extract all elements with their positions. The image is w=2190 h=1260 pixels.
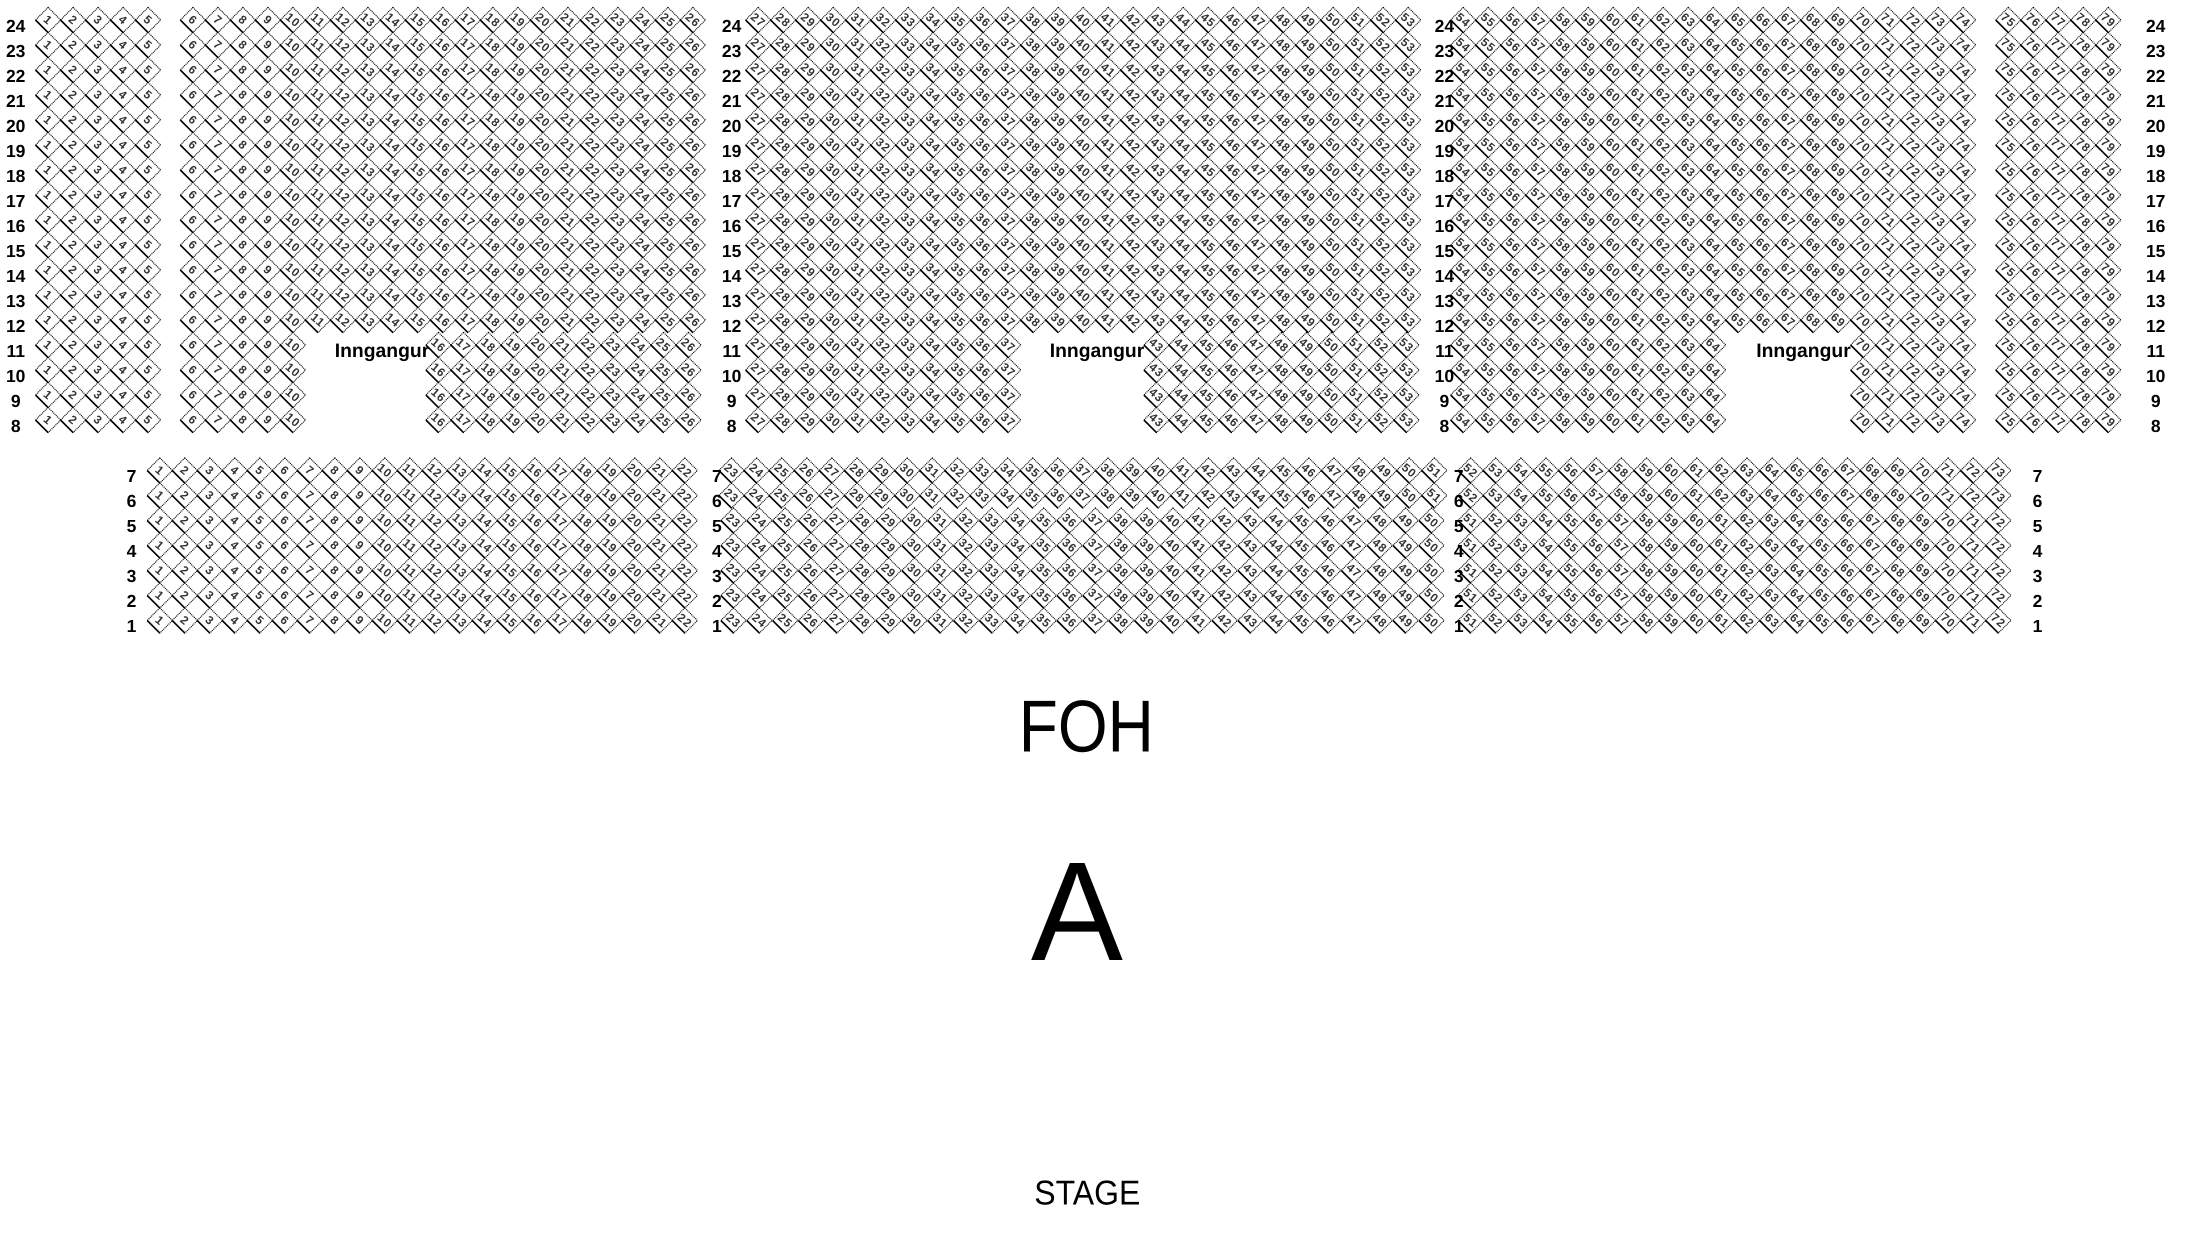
svg-text:52: 52 [1373, 85, 1393, 105]
svg-text:62: 62 [1712, 485, 1732, 505]
svg-text:58: 58 [1611, 460, 1631, 480]
svg-text:34: 34 [923, 310, 943, 330]
svg-text:44: 44 [1173, 35, 1193, 55]
svg-text:15: 15 [408, 110, 428, 130]
svg-text:47: 47 [1248, 160, 1268, 180]
svg-text:20: 20 [533, 310, 553, 330]
svg-text:40: 40 [1163, 585, 1183, 605]
svg-text:39: 39 [1048, 110, 1068, 130]
svg-text:29: 29 [798, 310, 818, 330]
svg-text:50: 50 [1321, 360, 1341, 380]
svg-text:65: 65 [1812, 510, 1832, 530]
svg-text:30: 30 [823, 135, 843, 155]
svg-text:56: 56 [1586, 585, 1606, 605]
svg-text:31: 31 [848, 185, 868, 205]
svg-text:68: 68 [1803, 260, 1823, 280]
svg-text:42: 42 [1123, 160, 1143, 180]
svg-text:55: 55 [1478, 185, 1498, 205]
svg-text:Inngangur: Inngangur [1050, 340, 1145, 362]
svg-text:20: 20 [528, 335, 548, 355]
svg-text:61: 61 [1628, 10, 1648, 30]
svg-text:17: 17 [453, 410, 473, 430]
svg-text:31: 31 [930, 510, 950, 530]
svg-text:74: 74 [1953, 110, 1973, 130]
svg-text:39: 39 [1137, 610, 1157, 630]
svg-text:7: 7 [127, 466, 137, 486]
svg-text:25: 25 [775, 585, 795, 605]
svg-text:33: 33 [898, 385, 918, 405]
svg-text:55: 55 [1561, 610, 1581, 630]
svg-text:62: 62 [1653, 285, 1673, 305]
svg-text:21: 21 [558, 160, 578, 180]
svg-text:37: 37 [998, 385, 1018, 405]
svg-text:50: 50 [1323, 310, 1343, 330]
svg-text:74: 74 [1953, 310, 1973, 330]
svg-text:38: 38 [1023, 35, 1043, 55]
svg-text:66: 66 [1753, 160, 1773, 180]
svg-text:38: 38 [1023, 210, 1043, 230]
svg-text:11: 11 [308, 235, 328, 255]
svg-text:51: 51 [1348, 10, 1368, 30]
svg-text:32: 32 [873, 410, 893, 430]
svg-text:20: 20 [533, 110, 553, 130]
svg-text:71: 71 [1878, 210, 1898, 230]
svg-text:14: 14 [383, 60, 403, 80]
svg-text:30: 30 [823, 210, 843, 230]
svg-text:31: 31 [848, 35, 868, 55]
svg-text:24: 24 [1435, 16, 1455, 36]
svg-text:75: 75 [1998, 10, 2018, 30]
svg-text:23: 23 [608, 110, 628, 130]
svg-text:79: 79 [2098, 410, 2118, 430]
svg-text:33: 33 [898, 135, 918, 155]
svg-text:28: 28 [773, 60, 793, 80]
svg-text:17: 17 [458, 185, 478, 205]
svg-text:76: 76 [2023, 210, 2043, 230]
svg-text:62: 62 [1653, 385, 1673, 405]
svg-text:53: 53 [1398, 135, 1418, 155]
svg-text:36: 36 [973, 335, 993, 355]
svg-text:72: 72 [1988, 510, 2008, 530]
svg-text:54: 54 [1536, 510, 1556, 530]
svg-text:50: 50 [1421, 610, 1441, 630]
svg-text:30: 30 [823, 385, 843, 405]
svg-text:15: 15 [408, 185, 428, 205]
svg-text:69: 69 [1828, 110, 1848, 130]
svg-text:39: 39 [1048, 310, 1068, 330]
svg-text:72: 72 [1903, 385, 1923, 405]
svg-text:20: 20 [625, 610, 645, 630]
svg-text:17: 17 [458, 110, 478, 130]
svg-text:48: 48 [1370, 510, 1390, 530]
svg-text:45: 45 [1292, 610, 1312, 630]
svg-text:69: 69 [1828, 35, 1848, 55]
svg-text:8: 8 [2151, 416, 2161, 436]
svg-text:55: 55 [1478, 110, 1498, 130]
svg-text:27: 27 [748, 85, 768, 105]
svg-text:65: 65 [1728, 60, 1748, 80]
svg-text:58: 58 [1636, 535, 1656, 555]
svg-text:62: 62 [1653, 310, 1673, 330]
svg-text:20: 20 [533, 235, 553, 255]
svg-text:37: 37 [1085, 560, 1105, 580]
svg-text:35: 35 [1033, 560, 1053, 580]
svg-text:79: 79 [2098, 235, 2118, 255]
svg-text:48: 48 [1273, 160, 1293, 180]
svg-text:57: 57 [1528, 410, 1548, 430]
svg-text:47: 47 [1248, 260, 1268, 280]
svg-text:18: 18 [575, 460, 595, 480]
svg-text:71: 71 [1878, 235, 1898, 255]
svg-text:32: 32 [873, 110, 893, 130]
svg-text:18: 18 [483, 235, 503, 255]
svg-text:57: 57 [1528, 110, 1548, 130]
svg-text:41: 41 [1098, 110, 1118, 130]
svg-text:26: 26 [683, 285, 703, 305]
svg-text:27: 27 [827, 510, 847, 530]
svg-text:32: 32 [873, 160, 893, 180]
svg-text:53: 53 [1398, 160, 1418, 180]
svg-text:68: 68 [1888, 610, 1908, 630]
svg-text:23: 23 [603, 410, 623, 430]
svg-text:72: 72 [1903, 235, 1923, 255]
svg-text:36: 36 [973, 85, 993, 105]
svg-text:12: 12 [333, 260, 353, 280]
svg-text:42: 42 [1123, 35, 1143, 55]
svg-text:76: 76 [2023, 10, 2043, 30]
svg-text:31: 31 [848, 85, 868, 105]
svg-text:13: 13 [358, 235, 378, 255]
svg-text:59: 59 [1578, 10, 1598, 30]
svg-text:28: 28 [773, 310, 793, 330]
svg-text:29: 29 [798, 335, 818, 355]
svg-text:22: 22 [675, 460, 695, 480]
svg-text:66: 66 [1753, 135, 1773, 155]
svg-text:15: 15 [408, 10, 428, 30]
svg-text:62: 62 [1737, 560, 1757, 580]
svg-text:62: 62 [1653, 235, 1673, 255]
svg-text:25: 25 [658, 310, 678, 330]
svg-text:73: 73 [1928, 10, 1948, 30]
svg-text:19: 19 [600, 460, 620, 480]
svg-text:52: 52 [1485, 560, 1505, 580]
svg-text:14: 14 [475, 585, 495, 605]
svg-text:26: 26 [683, 85, 703, 105]
svg-text:60: 60 [1603, 35, 1623, 55]
svg-text:19: 19 [508, 310, 528, 330]
svg-text:63: 63 [1737, 485, 1757, 505]
svg-text:49: 49 [1296, 335, 1316, 355]
svg-text:51: 51 [1348, 110, 1368, 130]
svg-text:28: 28 [773, 35, 793, 55]
svg-text:16: 16 [428, 360, 448, 380]
svg-text:14: 14 [383, 160, 403, 180]
svg-text:57: 57 [1611, 535, 1631, 555]
svg-text:14: 14 [6, 266, 26, 286]
svg-text:70: 70 [1853, 10, 1873, 30]
svg-text:73: 73 [1928, 260, 1948, 280]
svg-text:23: 23 [608, 60, 628, 80]
svg-text:51: 51 [1346, 385, 1366, 405]
svg-text:25: 25 [658, 85, 678, 105]
svg-text:72: 72 [1988, 535, 2008, 555]
svg-text:75: 75 [1998, 285, 2018, 305]
svg-text:63: 63 [1678, 235, 1698, 255]
svg-text:17: 17 [1435, 191, 1454, 211]
svg-text:63: 63 [1762, 610, 1782, 630]
svg-text:13: 13 [358, 310, 378, 330]
svg-text:38: 38 [1111, 535, 1131, 555]
svg-text:67: 67 [1778, 310, 1798, 330]
svg-text:61: 61 [1628, 285, 1648, 305]
svg-text:24: 24 [633, 85, 653, 105]
svg-text:35: 35 [948, 410, 968, 430]
svg-text:14: 14 [475, 485, 495, 505]
svg-text:23: 23 [723, 585, 743, 605]
svg-text:40: 40 [1073, 235, 1093, 255]
svg-text:58: 58 [1553, 160, 1573, 180]
svg-text:40: 40 [1163, 560, 1183, 580]
svg-text:57: 57 [1528, 285, 1548, 305]
svg-text:43: 43 [1148, 60, 1168, 80]
svg-text:11: 11 [308, 35, 328, 55]
svg-text:67: 67 [1862, 585, 1882, 605]
svg-text:43: 43 [1148, 185, 1168, 205]
svg-text:56: 56 [1561, 485, 1581, 505]
svg-text:25: 25 [658, 60, 678, 80]
svg-text:30: 30 [823, 60, 843, 80]
svg-text:78: 78 [2073, 410, 2093, 430]
svg-text:39: 39 [1123, 460, 1143, 480]
svg-text:69: 69 [1913, 560, 1933, 580]
svg-text:70: 70 [1853, 310, 1873, 330]
svg-text:29: 29 [798, 10, 818, 30]
svg-text:18: 18 [483, 35, 503, 55]
svg-text:22: 22 [578, 410, 598, 430]
svg-text:5: 5 [2033, 516, 2043, 536]
svg-text:41: 41 [1189, 610, 1209, 630]
svg-text:6: 6 [127, 491, 137, 511]
svg-text:72: 72 [1903, 260, 1923, 280]
svg-text:78: 78 [2073, 160, 2093, 180]
svg-text:12: 12 [333, 235, 353, 255]
svg-text:79: 79 [2098, 335, 2118, 355]
svg-text:61: 61 [1628, 385, 1648, 405]
svg-text:51: 51 [1348, 235, 1368, 255]
svg-text:33: 33 [898, 235, 918, 255]
svg-text:77: 77 [2048, 185, 2068, 205]
svg-text:13: 13 [6, 291, 26, 311]
svg-text:10: 10 [283, 185, 303, 205]
svg-text:41: 41 [1098, 135, 1118, 155]
svg-text:54: 54 [1453, 360, 1473, 380]
svg-text:50: 50 [1323, 85, 1343, 105]
svg-text:66: 66 [1753, 210, 1773, 230]
svg-text:48: 48 [1271, 385, 1291, 405]
svg-text:73: 73 [1928, 135, 1948, 155]
svg-text:14: 14 [475, 610, 495, 630]
svg-text:43: 43 [1240, 510, 1260, 530]
svg-text:26: 26 [801, 560, 821, 580]
svg-text:70: 70 [1853, 260, 1873, 280]
svg-text:49: 49 [1298, 135, 1318, 155]
svg-text:60: 60 [1603, 160, 1623, 180]
svg-text:29: 29 [798, 110, 818, 130]
svg-text:32: 32 [956, 585, 976, 605]
svg-text:18: 18 [483, 185, 503, 205]
svg-text:21: 21 [558, 285, 578, 305]
svg-text:12: 12 [425, 460, 445, 480]
svg-text:38: 38 [1023, 10, 1043, 30]
svg-text:45: 45 [1198, 110, 1218, 130]
svg-text:32: 32 [956, 535, 976, 555]
svg-text:59: 59 [1578, 260, 1598, 280]
svg-text:40: 40 [1073, 210, 1093, 230]
svg-text:25: 25 [658, 10, 678, 30]
svg-text:4: 4 [712, 541, 722, 561]
svg-text:79: 79 [2098, 85, 2118, 105]
svg-text:34: 34 [923, 235, 943, 255]
svg-text:23: 23 [608, 260, 628, 280]
svg-text:64: 64 [1762, 485, 1782, 505]
svg-text:43: 43 [1148, 260, 1168, 280]
svg-text:25: 25 [771, 460, 791, 480]
svg-text:51: 51 [1348, 160, 1368, 180]
svg-text:21: 21 [553, 410, 573, 430]
svg-text:43: 43 [1148, 85, 1168, 105]
svg-text:10: 10 [375, 560, 395, 580]
svg-text:19: 19 [503, 410, 523, 430]
svg-text:24: 24 [633, 60, 653, 80]
svg-text:59: 59 [1661, 585, 1681, 605]
svg-text:22: 22 [583, 35, 603, 55]
svg-text:49: 49 [1298, 285, 1318, 305]
svg-text:70: 70 [1853, 235, 1873, 255]
svg-text:37: 37 [1085, 510, 1105, 530]
svg-text:57: 57 [1528, 85, 1548, 105]
svg-text:44: 44 [1266, 535, 1286, 555]
svg-text:24: 24 [633, 110, 653, 130]
svg-text:24: 24 [628, 410, 648, 430]
svg-text:13: 13 [358, 185, 378, 205]
svg-text:14: 14 [383, 185, 403, 205]
svg-text:59: 59 [1578, 235, 1598, 255]
svg-text:14: 14 [2146, 266, 2166, 286]
svg-text:68: 68 [1803, 35, 1823, 55]
svg-text:20: 20 [2146, 116, 2166, 136]
svg-text:56: 56 [1586, 510, 1606, 530]
svg-text:44: 44 [1173, 60, 1193, 80]
svg-text:40: 40 [1073, 135, 1093, 155]
svg-text:76: 76 [2023, 60, 2043, 80]
svg-text:19: 19 [508, 185, 528, 205]
svg-text:61: 61 [1628, 85, 1648, 105]
svg-text:28: 28 [773, 285, 793, 305]
svg-text:34: 34 [997, 460, 1017, 480]
svg-text:61: 61 [1628, 185, 1648, 205]
svg-text:38: 38 [1111, 585, 1131, 605]
svg-text:33: 33 [898, 160, 918, 180]
svg-text:34: 34 [1008, 610, 1028, 630]
svg-text:11: 11 [308, 85, 328, 105]
svg-text:68: 68 [1803, 185, 1823, 205]
svg-text:71: 71 [1878, 135, 1898, 155]
svg-text:70: 70 [1853, 35, 1873, 55]
svg-text:6: 6 [1454, 491, 1464, 511]
svg-text:69: 69 [1828, 285, 1848, 305]
svg-text:49: 49 [1395, 610, 1415, 630]
svg-text:25: 25 [658, 210, 678, 230]
svg-text:20: 20 [625, 535, 645, 555]
svg-text:72: 72 [1903, 285, 1923, 305]
svg-text:43: 43 [1240, 610, 1260, 630]
svg-text:50: 50 [1321, 385, 1341, 405]
svg-text:56: 56 [1503, 135, 1523, 155]
svg-text:64: 64 [1703, 135, 1723, 155]
svg-text:67: 67 [1778, 235, 1798, 255]
svg-text:27: 27 [748, 410, 768, 430]
svg-text:55: 55 [1561, 560, 1581, 580]
svg-text:26: 26 [801, 610, 821, 630]
svg-text:24: 24 [628, 360, 648, 380]
svg-text:67: 67 [1778, 85, 1798, 105]
svg-text:70: 70 [1853, 110, 1873, 130]
svg-text:19: 19 [6, 141, 26, 161]
svg-text:63: 63 [1737, 460, 1757, 480]
svg-text:13: 13 [450, 585, 470, 605]
svg-text:9: 9 [11, 391, 21, 411]
svg-text:13: 13 [358, 135, 378, 155]
svg-text:55: 55 [1478, 210, 1498, 230]
svg-text:24: 24 [746, 485, 766, 505]
svg-text:67: 67 [1778, 160, 1798, 180]
svg-text:55: 55 [1478, 35, 1498, 55]
svg-text:77: 77 [2048, 260, 2068, 280]
svg-text:27: 27 [748, 385, 768, 405]
svg-text:18: 18 [478, 385, 498, 405]
svg-text:35: 35 [948, 10, 968, 30]
svg-text:23: 23 [608, 135, 628, 155]
svg-text:50: 50 [1399, 485, 1419, 505]
svg-text:61: 61 [1712, 510, 1732, 530]
svg-text:56: 56 [1503, 285, 1523, 305]
svg-text:40: 40 [1163, 610, 1183, 630]
svg-text:42: 42 [1123, 235, 1143, 255]
svg-text:36: 36 [1059, 610, 1079, 630]
svg-text:75: 75 [1998, 60, 2018, 80]
svg-text:59: 59 [1661, 535, 1681, 555]
svg-text:15: 15 [408, 285, 428, 305]
svg-text:48: 48 [1370, 610, 1390, 630]
svg-text:29: 29 [878, 510, 898, 530]
svg-text:51: 51 [1348, 285, 1368, 305]
svg-text:17: 17 [550, 560, 570, 580]
svg-text:26: 26 [683, 35, 703, 55]
svg-text:60: 60 [1603, 285, 1623, 305]
svg-text:17: 17 [2146, 191, 2165, 211]
svg-text:72: 72 [1903, 85, 1923, 105]
svg-text:12: 12 [722, 316, 742, 336]
svg-text:24: 24 [628, 335, 648, 355]
svg-text:69: 69 [1913, 535, 1933, 555]
svg-text:39: 39 [1137, 585, 1157, 605]
svg-text:11: 11 [400, 461, 420, 481]
svg-text:64: 64 [1703, 35, 1723, 55]
svg-text:19: 19 [722, 141, 742, 161]
svg-text:48: 48 [1370, 535, 1390, 555]
svg-text:17: 17 [458, 285, 478, 305]
svg-text:22: 22 [675, 510, 695, 530]
